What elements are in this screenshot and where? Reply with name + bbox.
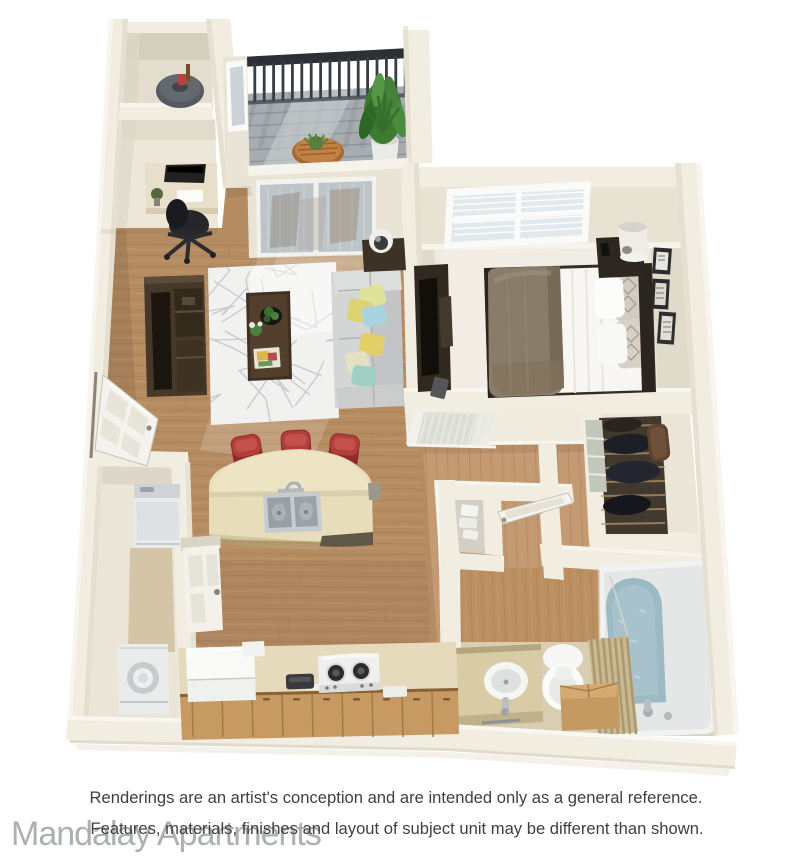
svg-text:Renderings are an artist's con: Renderings are an artist's conception an… [90,788,703,807]
svg-text:Features, materials, finishes: Features, materials, finishes and layout… [90,819,703,838]
